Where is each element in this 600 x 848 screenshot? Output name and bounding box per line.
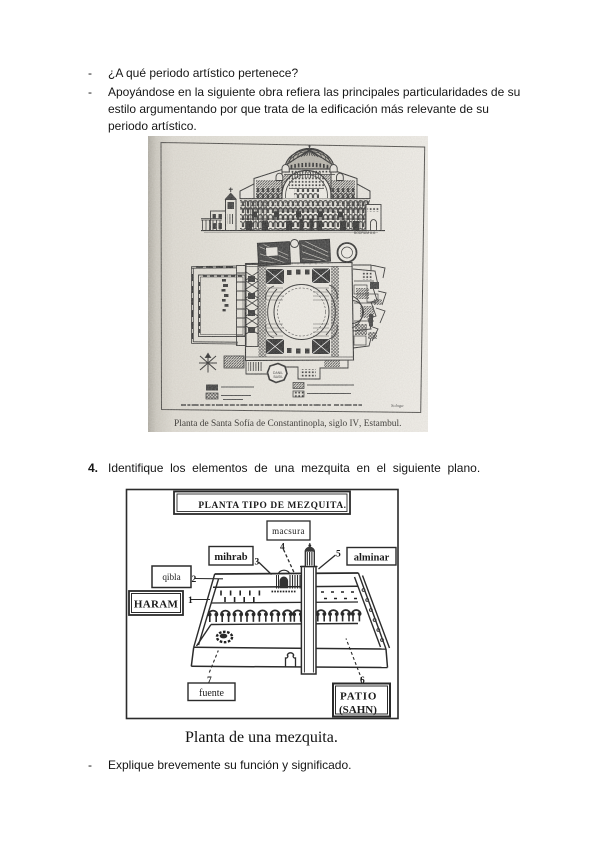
svg-text:qibla: qibla	[162, 572, 180, 582]
svg-text:(SAHN): (SAHN)	[339, 704, 377, 716]
svg-text:5: 5	[336, 550, 341, 560]
svg-text:macsura: macsura	[272, 526, 305, 536]
svg-text:alminar: alminar	[354, 553, 390, 564]
svg-text:PATIO: PATIO	[340, 691, 377, 703]
svg-text:HARAM: HARAM	[134, 599, 179, 611]
svg-text:3: 3	[255, 558, 260, 568]
svg-text:2: 2	[192, 575, 197, 585]
svg-text:4: 4	[280, 543, 285, 553]
svg-text:PLANTA TIPO DE MEZQUITA.: PLANTA TIPO DE MEZQUITA.	[198, 501, 346, 511]
svg-text:mihrab: mihrab	[214, 552, 247, 563]
svg-text:fuente: fuente	[199, 688, 225, 699]
svg-text:1: 1	[188, 596, 193, 606]
